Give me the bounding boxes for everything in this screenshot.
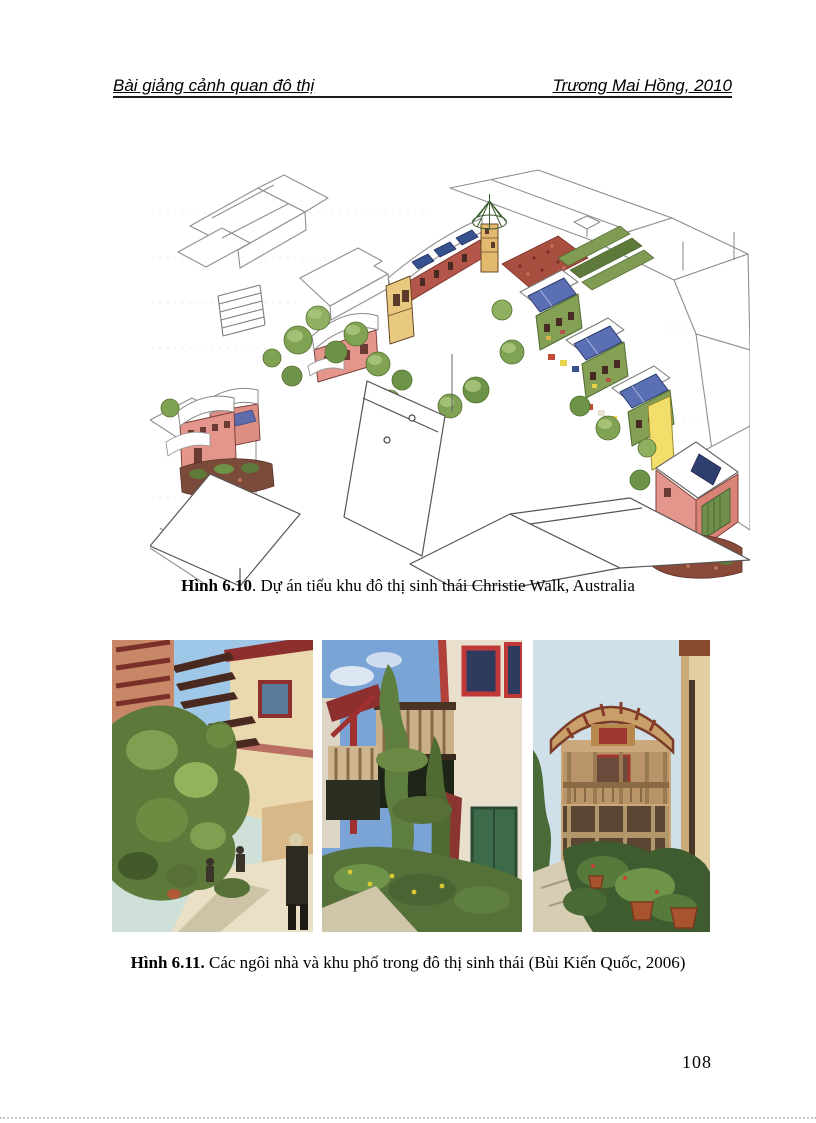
photo-courtyard-timber-house [533,640,710,932]
header-course-title: Bài giảng cảnh quan đô thị [113,75,314,96]
caption-6-11-text: Các ngôi nhà và khu phố trong đô thị sin… [205,953,686,972]
header-author-year: Trương Mai Hồng, 2010 [553,75,733,96]
page-header: Bài giảng cảnh quan đô thị Trương Mai Hồ… [113,70,732,98]
photo-vine-covered-walkway [112,640,313,932]
caption-6-10-text: . Dự án tiểu khu đô thị sinh thái Christ… [252,576,635,595]
photo-1-svg [112,640,313,932]
page-bottom-dotted-guide [0,1117,816,1119]
caption-6-10-label: Hình 6.10 [181,576,252,595]
document-page: Bài giảng cảnh quan đô thị Trương Mai Hồ… [0,0,816,1123]
page-number: 108 [682,1052,712,1073]
photo-2-svg [322,640,522,932]
aerial-sketch-svg [150,168,750,586]
photo-3-svg [533,640,710,932]
photo-balconies-climbing-plants [322,640,522,932]
figure-caption-6-11: Hình 6.11. Các ngôi nhà và khu phố trong… [80,953,736,973]
caption-6-11-label: Hình 6.11. [131,953,205,972]
figure-caption-6-10: Hình 6.10. Dự án tiểu khu đô thị sinh th… [80,576,736,596]
figure-christie-walk-aerial-sketch [150,168,750,586]
